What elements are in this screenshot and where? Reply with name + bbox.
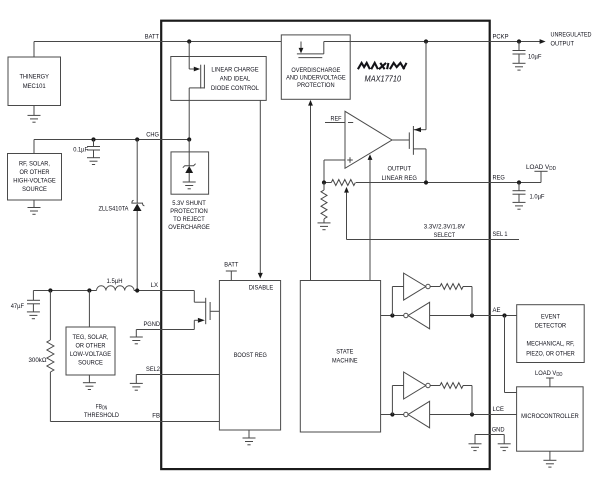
svg-text:1.5µH: 1.5µH: [107, 278, 123, 285]
svg-text:SEL2: SEL2: [146, 366, 160, 373]
svg-text:OVERDISCHARGE: OVERDISCHARGE: [291, 67, 340, 74]
svg-text:PROTECTION: PROTECTION: [297, 82, 335, 89]
svg-text:AND IDEAL: AND IDEAL: [220, 76, 251, 83]
svg-text:SEL 1: SEL 1: [493, 231, 508, 238]
svg-text:47µF: 47µF: [11, 303, 24, 310]
svg-text:PIEZO, OR OTHER: PIEZO, OR OTHER: [526, 350, 575, 357]
svg-text:LINEAR CHARGE: LINEAR CHARGE: [211, 66, 259, 73]
svg-text:TO REJECT: TO REJECT: [173, 216, 205, 223]
svg-text:LCE: LCE: [493, 406, 505, 413]
svg-text:MACHINE: MACHINE: [332, 358, 358, 365]
svg-text:STATE: STATE: [336, 349, 354, 356]
svg-text:AND UNDERVOLTAGE: AND UNDERVOLTAGE: [286, 75, 346, 82]
svg-text:OUTPUT: OUTPUT: [551, 40, 575, 47]
svg-text:OVERCHARGE: OVERCHARGE: [168, 224, 210, 231]
svg-text:OUTPUT: OUTPUT: [388, 166, 412, 173]
svg-text:THINERGY: THINERGY: [19, 74, 49, 81]
svg-text:EVENT: EVENT: [541, 314, 560, 321]
svg-text:LX: LX: [151, 282, 159, 289]
svg-text:DISABLE: DISABLE: [249, 285, 274, 292]
svg-text:RF, SOLAR,: RF, SOLAR,: [19, 160, 50, 167]
svg-text:BATT: BATT: [145, 33, 159, 40]
svg-text:CHG: CHG: [146, 131, 159, 138]
svg-text:PCKP: PCKP: [493, 33, 509, 40]
svg-text:BOOST REG: BOOST REG: [234, 352, 267, 359]
svg-text:BATT: BATT: [224, 261, 238, 268]
svg-text:300kΩ: 300kΩ: [29, 357, 47, 364]
svg-text:LOAD VDD: LOAD VDD: [535, 370, 563, 378]
svg-text:1.0µF: 1.0µF: [530, 194, 545, 201]
svg-text:OR OTHER: OR OTHER: [76, 342, 106, 349]
svg-text:UNREGULATED: UNREGULATED: [551, 31, 592, 38]
svg-text:AE: AE: [493, 307, 501, 314]
svg-text:10µF: 10µF: [528, 53, 542, 60]
svg-text:MECHANICAL, RF,: MECHANICAL, RF,: [527, 341, 575, 348]
svg-text:LINEAR REG: LINEAR REG: [382, 175, 417, 182]
svg-text:MEC101: MEC101: [23, 83, 46, 90]
svg-text:5.3V SHUNT: 5.3V SHUNT: [172, 200, 206, 207]
svg-text:REG: REG: [493, 175, 505, 182]
svg-text:HIGH-VOLTAGE: HIGH-VOLTAGE: [13, 177, 56, 184]
svg-text:FB: FB: [152, 413, 160, 420]
svg-text:SELECT: SELECT: [434, 232, 456, 239]
svg-text:TEG, SOLAR,: TEG, SOLAR,: [73, 334, 109, 341]
svg-text:OR OTHER: OR OTHER: [20, 169, 50, 176]
svg-text:MICROCONTROLLER: MICROCONTROLLER: [521, 413, 579, 420]
svg-text:SOURCE: SOURCE: [22, 186, 47, 193]
svg-text:LOW-VOLTAGE: LOW-VOLTAGE: [70, 351, 112, 358]
svg-text:MAX17710: MAX17710: [365, 74, 402, 83]
svg-text:THRESHOLD: THRESHOLD: [84, 412, 119, 419]
svg-text:FBON: FBON: [96, 403, 108, 411]
svg-text:SOURCE: SOURCE: [78, 359, 103, 366]
svg-text:REF: REF: [331, 116, 342, 123]
svg-text:GND: GND: [492, 427, 505, 434]
svg-text:DIODE CONTROL: DIODE CONTROL: [211, 85, 259, 92]
svg-text:3.3V/2.3V/1.8V: 3.3V/2.3V/1.8V: [424, 224, 466, 231]
svg-text:0.1µF: 0.1µF: [73, 146, 88, 153]
svg-text:ZLLS410TA: ZLLS410TA: [99, 205, 129, 212]
svg-text:PROTECTION: PROTECTION: [170, 208, 208, 215]
svg-text:PGND: PGND: [144, 321, 161, 328]
svg-text:DETECTOR: DETECTOR: [535, 322, 566, 329]
